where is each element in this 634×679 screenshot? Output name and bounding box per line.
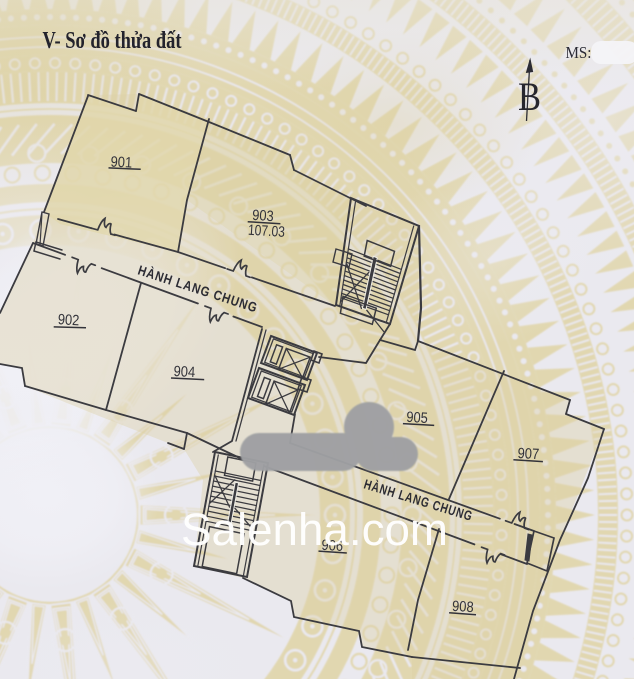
svg-text:Salenha.com: Salenha.com xyxy=(181,504,448,555)
svg-text:107.03: 107.03 xyxy=(247,222,285,241)
svg-text:MS:: MS: xyxy=(566,43,592,62)
svg-text:V- Sơ đồ thửa đất: V- Sơ đồ thửa đất xyxy=(43,28,182,54)
svg-text:B: B xyxy=(518,74,541,119)
